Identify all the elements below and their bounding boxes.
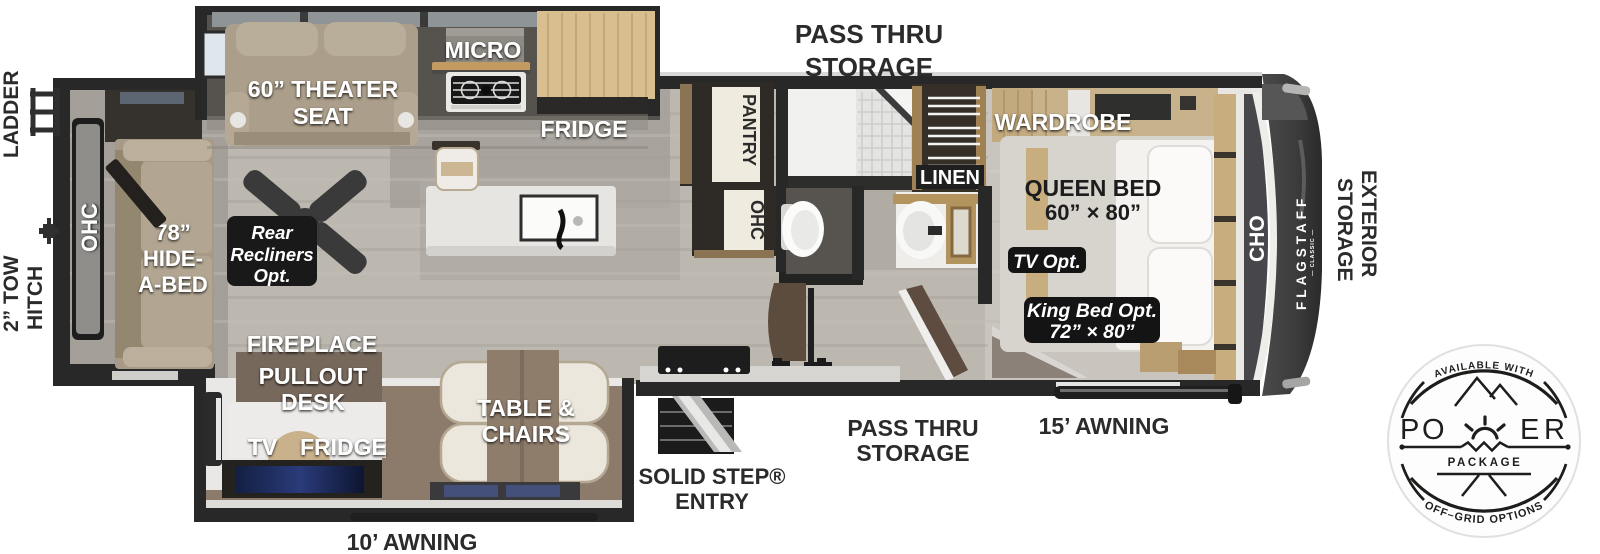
svg-text:FRIDGE: FRIDGE	[300, 434, 387, 460]
svg-text:A-BED: A-BED	[138, 272, 208, 297]
svg-text:Rear: Rear	[251, 222, 294, 243]
svg-text:— CLASSIC —: — CLASSIC —	[1310, 229, 1316, 276]
svg-text:MICRO: MICRO	[445, 37, 522, 63]
svg-text:HITCH: HITCH	[24, 266, 47, 330]
svg-text:PASS THRU: PASS THRU	[847, 415, 978, 441]
svg-text:PANTRY: PANTRY	[739, 94, 759, 166]
svg-text:FRIDGE: FRIDGE	[541, 116, 628, 142]
svg-text:LINEN: LINEN	[920, 167, 980, 189]
svg-text:WARDROBE: WARDROBE	[995, 109, 1132, 135]
svg-text:HIDE-: HIDE-	[143, 246, 203, 271]
svg-text:72” × 80”: 72” × 80”	[1049, 321, 1134, 343]
svg-text:10’ AWNING: 10’ AWNING	[347, 529, 478, 554]
svg-text:15’ AWNING: 15’ AWNING	[1039, 413, 1170, 439]
svg-text:ENTRY: ENTRY	[675, 489, 749, 514]
svg-text:QUEEN BED: QUEEN BED	[1025, 175, 1162, 201]
svg-text:PASS THRU: PASS THRU	[795, 19, 943, 49]
svg-text:STORAGE: STORAGE	[1333, 178, 1356, 281]
svg-text:TV: TV	[248, 434, 278, 460]
svg-text:TV Opt.: TV Opt.	[1013, 252, 1081, 273]
svg-text:O: O	[1422, 414, 1445, 446]
svg-text:FLAGSTAFF: FLAGSTAFF	[1294, 195, 1309, 310]
svg-text:STORAGE: STORAGE	[805, 52, 933, 82]
svg-text:2” TOW: 2” TOW	[0, 255, 23, 332]
svg-text:OHC: OHC	[747, 200, 767, 240]
svg-text:E: E	[1520, 414, 1539, 446]
svg-text:P: P	[1400, 414, 1419, 446]
svg-text:TABLE &: TABLE &	[477, 395, 575, 421]
svg-text:SOLID STEP®: SOLID STEP®	[638, 464, 785, 489]
svg-text:Opt.: Opt.	[254, 265, 291, 286]
svg-text:60” × 80”: 60” × 80”	[1045, 200, 1141, 225]
svg-text:DESK: DESK	[281, 389, 345, 415]
svg-text:King Bed Opt.: King Bed Opt.	[1027, 300, 1157, 322]
svg-text:LADDER: LADDER	[0, 71, 23, 159]
svg-text:EXTERIOR: EXTERIOR	[1357, 170, 1380, 277]
svg-text:OHC: OHC	[77, 203, 102, 252]
svg-text:Recliners: Recliners	[230, 244, 313, 265]
svg-text:CHAIRS: CHAIRS	[482, 421, 570, 447]
svg-text:STORAGE: STORAGE	[856, 440, 969, 466]
svg-text:SEAT: SEAT	[293, 103, 353, 129]
svg-text:PULLOUT: PULLOUT	[259, 363, 368, 389]
svg-text:PACKAGE: PACKAGE	[1448, 457, 1523, 469]
svg-text:R: R	[1544, 414, 1565, 446]
svg-text:60” THEATER: 60” THEATER	[248, 76, 399, 102]
svg-text:CHO: CHO	[1246, 215, 1269, 262]
svg-text:FIREPLACE: FIREPLACE	[247, 331, 377, 357]
